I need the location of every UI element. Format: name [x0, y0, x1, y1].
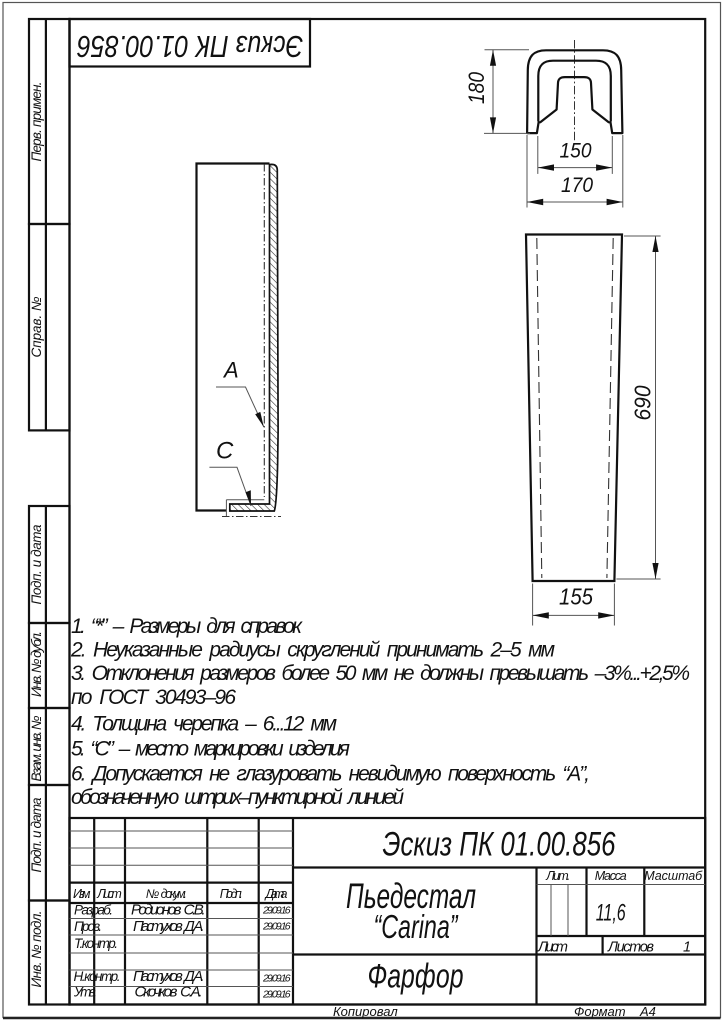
svg-text:1: 1: [683, 939, 691, 955]
svg-text:обозначенную штрих–пунктирной: обозначенную штрих–пунктирной линией: [71, 786, 404, 809]
svg-text:Фарфор: Фарфор: [368, 958, 464, 996]
svg-text:150: 150: [560, 140, 592, 163]
svg-text:Инв. № дубл.: Инв. № дубл.: [29, 631, 44, 697]
svg-text:29.09.16: 29.09.16: [262, 972, 291, 984]
svg-text:29.09.16: 29.09.16: [262, 988, 291, 1000]
svg-text:5. “С” – место маркировки изде: 5. “С” – место маркировки изделия: [71, 737, 350, 760]
svg-text:29.09.16: 29.09.16: [262, 920, 291, 932]
svg-text:Перв. примен.: Перв. примен.: [29, 82, 44, 162]
svg-text:Масса: Масса: [595, 869, 627, 883]
svg-text:А4: А4: [639, 1004, 656, 1019]
svg-text:Дата: Дата: [264, 887, 288, 901]
svg-text:№ докум.: № докум.: [146, 887, 187, 901]
svg-text:Т.контр.: Т.контр.: [74, 936, 118, 951]
svg-text:Пров.: Пров.: [74, 919, 102, 934]
svg-text:1. “*” – Размеры для справок: 1. “*” – Размеры для справок: [71, 615, 303, 638]
svg-text:6. Допускается не глазуровать: 6. Допускается не глазуровать невидимую …: [71, 762, 590, 785]
svg-text:Пастухов Д.А.: Пастухов Д.А.: [133, 918, 205, 935]
svg-text:Родионов С.В.: Родионов С.В.: [131, 902, 206, 919]
svg-text:29.09.16: 29.09.16: [262, 904, 291, 916]
svg-text:Лист: Лист: [537, 939, 568, 955]
svg-text:Подп. и дата: Подп. и дата: [29, 797, 44, 872]
svg-text:Копировал: Копировал: [333, 1004, 398, 1019]
svg-text:11,6: 11,6: [596, 900, 626, 927]
svg-text:Лит.: Лит.: [545, 869, 570, 883]
svg-text:Листов: Листов: [607, 939, 654, 955]
svg-text:Лист: Лист: [96, 887, 122, 901]
svg-text:Подп.: Подп.: [220, 887, 243, 901]
svg-text:180: 180: [464, 71, 489, 104]
svg-text:А: А: [222, 358, 239, 383]
svg-text:690: 690: [630, 386, 656, 421]
svg-text:170: 170: [561, 174, 593, 197]
svg-text:2. Неуказанные радиусы скругле: 2. Неуказанные радиусы скруглений приним…: [70, 639, 555, 662]
svg-text:4. Толщина черепка – 6...12 м: 4. Толщина черепка – 6...12 мм: [71, 713, 337, 736]
svg-text:Инв. № подл.: Инв. № подл.: [29, 911, 44, 988]
svg-text:Взам. инв. №: Взам. инв. №: [29, 715, 44, 781]
svg-text:Масштаб: Масштаб: [644, 869, 703, 883]
svg-text:Утв.: Утв.: [73, 985, 97, 1000]
svg-text:С: С: [216, 438, 234, 465]
svg-text:Подп. и дата: Подп. и дата: [29, 524, 44, 604]
svg-text:3. Отклонения размеров более 5: 3. Отклонения размеров более 50 мм не до…: [71, 662, 690, 685]
svg-text:“Carina”: “Carina”: [374, 908, 459, 945]
svg-text:Справ. №: Справ. №: [29, 296, 44, 357]
svg-text:Эскиз ПК 01.00.856: Эскиз ПК 01.00.856: [383, 826, 617, 864]
svg-text:по ГОСТ 30493–96: по ГОСТ 30493–96: [71, 686, 236, 709]
svg-text:Формат: Формат: [574, 1004, 626, 1019]
svg-text:Разраб.: Разраб.: [74, 903, 113, 918]
svg-text:Н.контр.: Н.контр.: [74, 969, 121, 984]
svg-text:Эскиз ПК 01.00.856: Эскиз ПК 01.00.856: [76, 29, 303, 64]
svg-text:Изм.: Изм.: [73, 887, 91, 901]
svg-text:Пастухов Д.А.: Пастухов Д.А.: [133, 968, 205, 985]
svg-text:155: 155: [559, 584, 593, 610]
svg-text:Скочков С.А.: Скочков С.А.: [135, 984, 203, 1001]
